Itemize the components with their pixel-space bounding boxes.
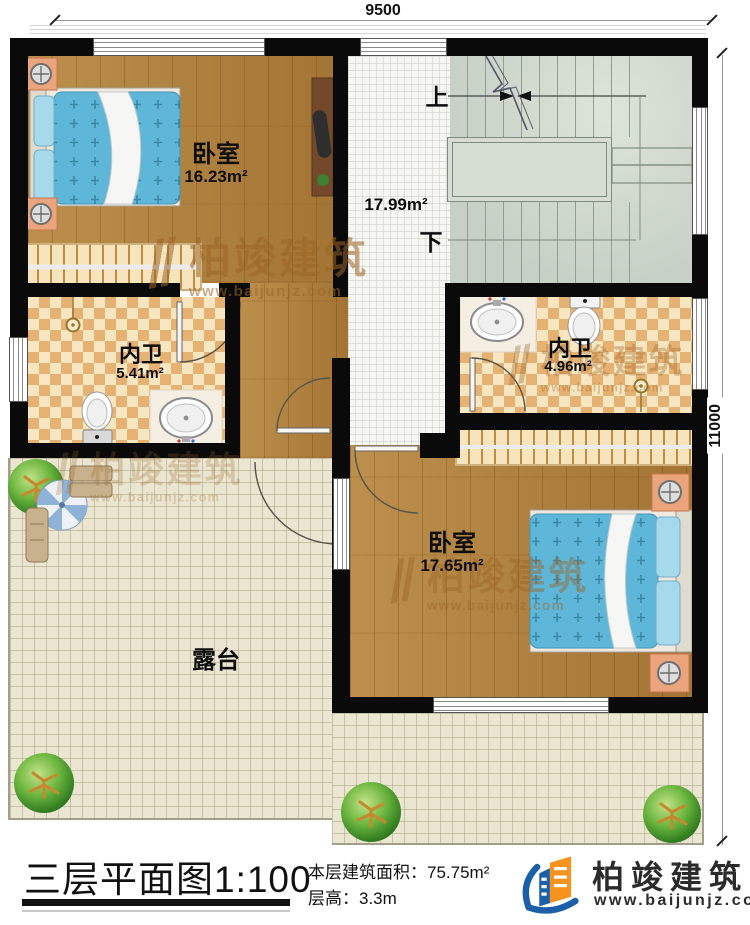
wall	[445, 297, 460, 453]
title-underline	[22, 899, 290, 906]
window	[692, 107, 708, 235]
door-bedroom2	[355, 446, 418, 513]
window	[692, 298, 708, 390]
window	[433, 697, 609, 713]
nightstand	[25, 58, 57, 90]
tree	[341, 782, 401, 842]
plan-title: 三层平面图1:100	[24, 849, 312, 903]
plan-scale: 1:100	[214, 859, 312, 900]
stair-up-label: 上	[426, 85, 449, 109]
dimension-top-value: 9500	[359, 2, 407, 20]
window	[9, 337, 28, 402]
nightstand	[652, 474, 689, 511]
wall	[225, 297, 240, 443]
bedroom2-wardrobe	[455, 428, 694, 466]
pendant-lamp	[67, 297, 80, 332]
wall	[10, 283, 180, 297]
tree	[643, 785, 701, 843]
nightstand	[25, 198, 57, 230]
door-corridor	[277, 378, 330, 433]
wall	[460, 413, 692, 430]
pendant-lamp	[635, 380, 648, 413]
window	[360, 38, 447, 56]
floor-area-label: 本层建筑面积：	[308, 863, 427, 882]
bath2-label: 内卫	[548, 337, 592, 360]
bath2-area: 4.96m²	[544, 359, 592, 375]
company-logo-icon	[518, 850, 586, 918]
floor-area-value: 75.75m²	[427, 863, 489, 882]
dimension-line-top	[55, 20, 712, 21]
terrace-label: 露台	[192, 648, 240, 673]
floor-height-label: 层高：	[308, 889, 359, 908]
floor-height-value: 3.3m	[359, 889, 397, 908]
toilet	[82, 392, 112, 444]
bedroom1-label: 卧室	[192, 142, 240, 167]
plan-title-text: 三层平面图	[24, 859, 214, 900]
company-logo-website: www.baijunjz.com	[594, 892, 750, 910]
desk	[312, 78, 333, 196]
wall	[10, 443, 240, 458]
floor-height-stat: 层高：3.3m	[308, 884, 397, 909]
stair-direction-lines	[448, 55, 692, 240]
bed-1	[30, 88, 180, 206]
bedroom2-label: 卧室	[428, 531, 476, 556]
stair-down-label: 下	[420, 230, 443, 254]
bedroom2-area: 17.65m²	[420, 557, 483, 575]
dimension-right-value: 11000	[707, 398, 725, 454]
bed-2	[530, 510, 692, 652]
bedroom1-area: 16.23m²	[184, 168, 247, 186]
floor-plan-page: 卧室 16.23m² 17.99m² 上 下 内卫 5.41m² 内卫 4.96…	[0, 0, 750, 925]
tree	[14, 753, 74, 813]
bath1-label: 内卫	[119, 343, 163, 366]
window	[93, 38, 265, 56]
nightstand	[650, 654, 689, 692]
door-bath2	[470, 358, 525, 411]
wall	[445, 283, 708, 297]
terrace-glass-door	[333, 478, 350, 570]
bath1-area: 5.41m²	[116, 366, 164, 382]
floor-area-stat: 本层建筑面积：75.75m²	[308, 858, 489, 883]
wall	[420, 433, 460, 458]
title-underline-thin	[22, 910, 290, 912]
sink	[460, 296, 536, 352]
door-terrace	[255, 462, 337, 544]
hall-area: 17.99m²	[364, 196, 427, 214]
wall	[333, 56, 348, 297]
wall	[219, 283, 250, 297]
